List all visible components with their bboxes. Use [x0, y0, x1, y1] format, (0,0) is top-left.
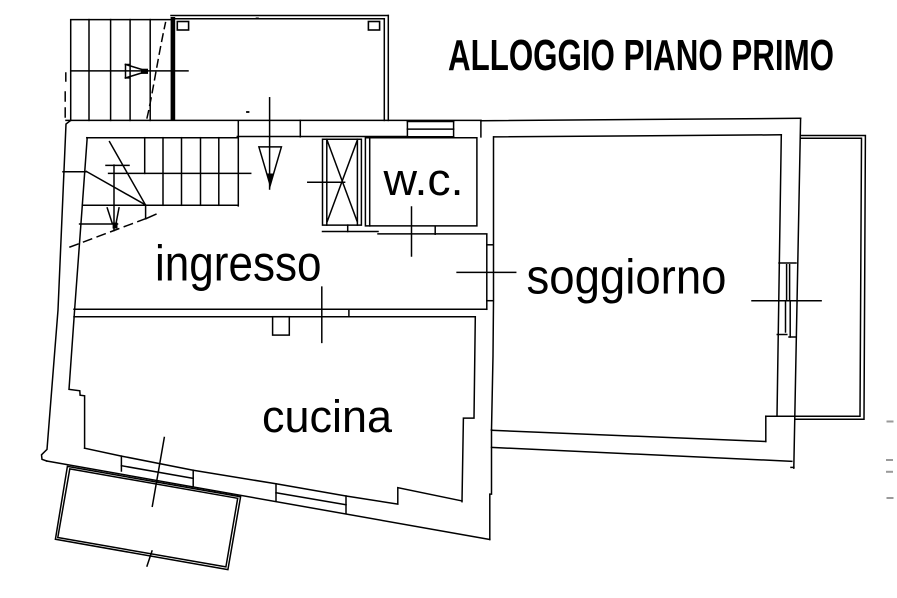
svg-text:ingresso: ingresso — [155, 235, 322, 291]
svg-text:w.c.: w.c. — [382, 154, 463, 205]
svg-text:soggiorno: soggiorno — [527, 251, 727, 305]
svg-text:cucina: cucina — [262, 391, 393, 442]
svg-text:ALLOGGIO PIANO PRIMO: ALLOGGIO PIANO PRIMO — [448, 31, 834, 80]
